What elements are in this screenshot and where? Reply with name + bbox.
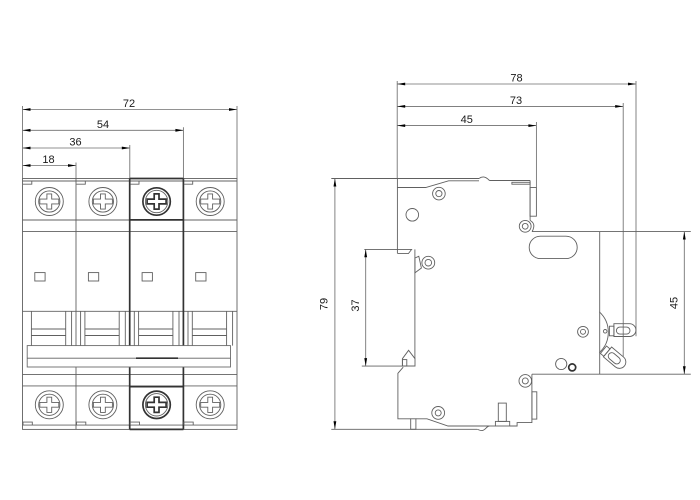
svg-text:78: 78 <box>510 73 522 85</box>
svg-text:45: 45 <box>461 114 473 126</box>
svg-text:73: 73 <box>510 95 522 107</box>
svg-text:72: 72 <box>123 98 135 110</box>
svg-text:79: 79 <box>319 298 331 310</box>
svg-text:37: 37 <box>350 299 362 311</box>
svg-text:36: 36 <box>69 137 81 149</box>
svg-text:45: 45 <box>669 297 681 309</box>
svg-text:54: 54 <box>97 119 109 131</box>
svg-text:18: 18 <box>42 154 54 166</box>
